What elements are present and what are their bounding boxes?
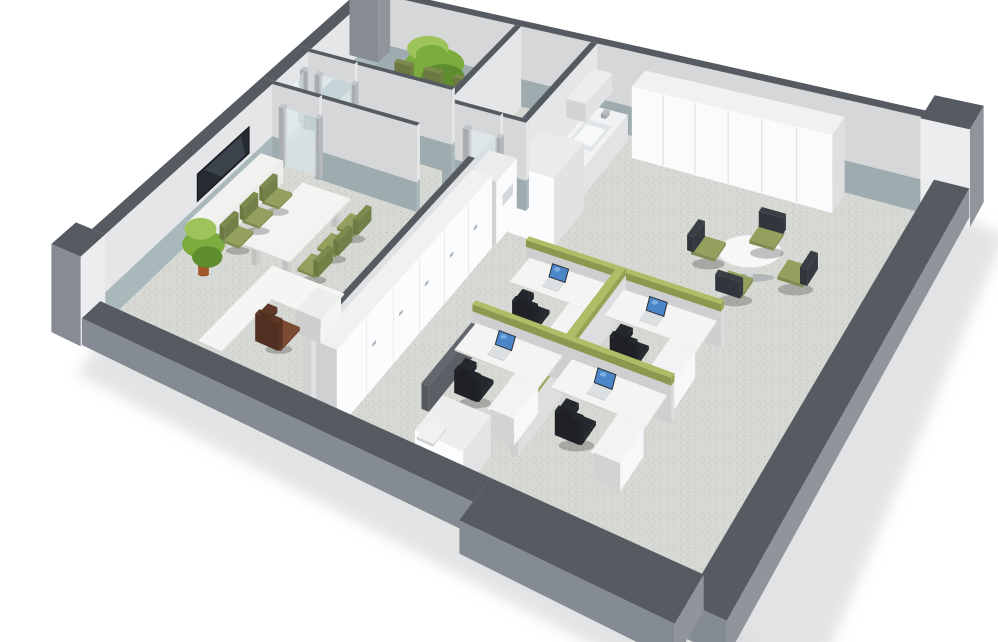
locker-seam-5	[366, 318, 367, 396]
locker-seam-2	[444, 230, 445, 304]
office-floorplan-stage	[0, 0, 998, 642]
corner-pillar-top	[350, 0, 391, 63]
locker-seam-1	[468, 203, 469, 275]
office-floorplan-3d-render	[0, 0, 998, 642]
wardrobe-seam-2	[694, 103, 696, 174]
wardrobe-seam-5	[796, 128, 798, 202]
exec-door-glass	[285, 107, 316, 176]
locker-seam-3	[419, 258, 420, 333]
scene-root	[51, 0, 998, 642]
wardrobe-seam-4	[761, 119, 763, 192]
locker-seam-4	[393, 287, 394, 363]
wardrobe-seam-1	[662, 95, 664, 165]
wardrobe-seam-3	[728, 111, 730, 183]
